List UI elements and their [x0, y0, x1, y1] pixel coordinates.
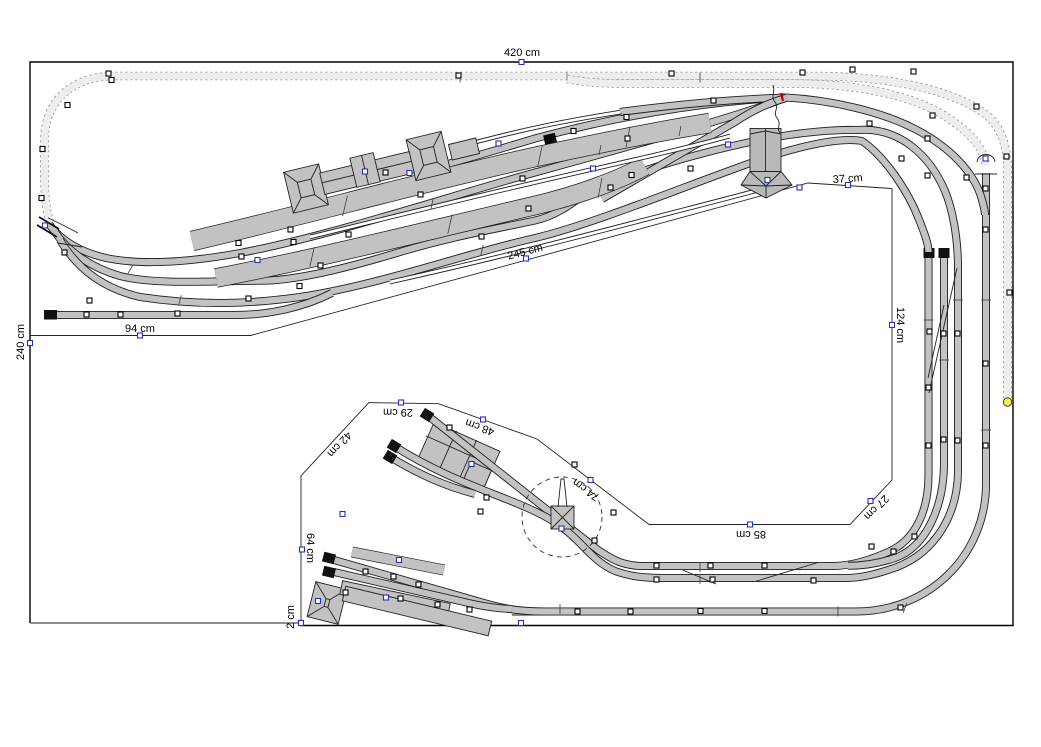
svg-text:85 cm: 85 cm — [736, 528, 766, 540]
svg-text:124 cm: 124 cm — [894, 307, 906, 343]
svg-text:240 cm: 240 cm — [15, 324, 27, 360]
svg-text:29 cm: 29 cm — [383, 406, 413, 419]
svg-text:420 cm: 420 cm — [504, 47, 540, 59]
svg-text:94 cm: 94 cm — [125, 323, 155, 335]
svg-text:2 cm: 2 cm — [285, 605, 297, 629]
svg-text:37 cm: 37 cm — [832, 172, 863, 186]
svg-text:64 cm: 64 cm — [304, 533, 316, 563]
